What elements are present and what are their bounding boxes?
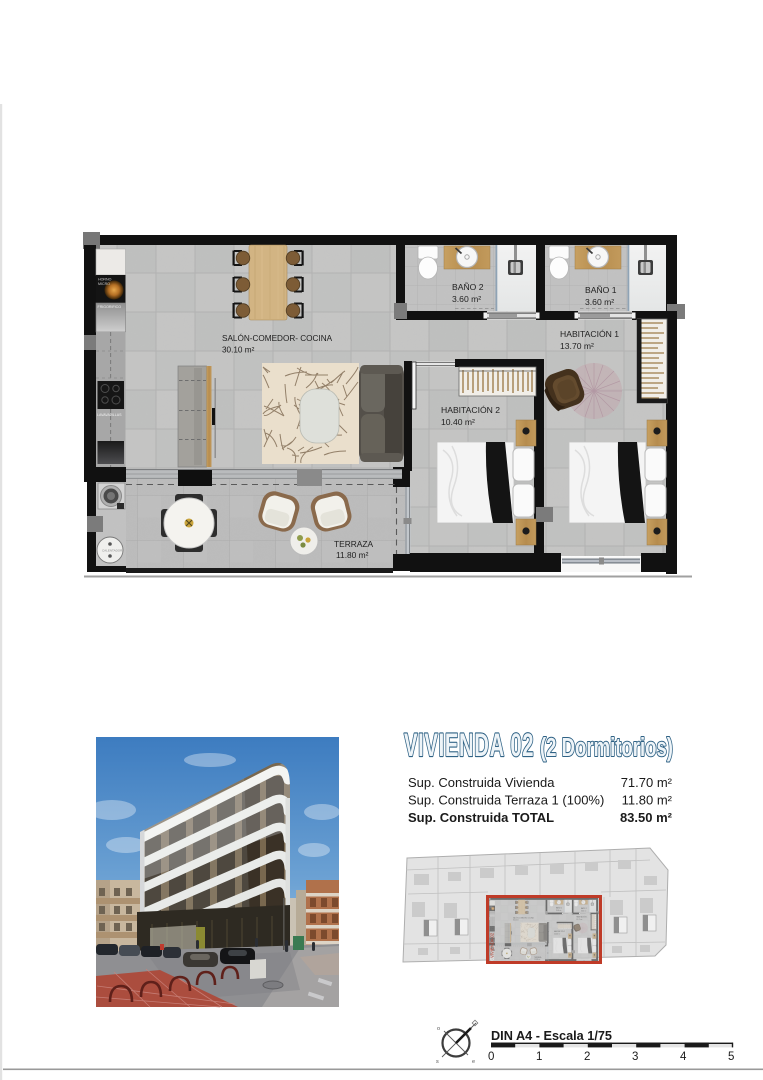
svg-text:o: o xyxy=(437,1026,440,1032)
svg-text:2: 2 xyxy=(584,1051,590,1063)
svg-text:3.60 m²: 3.60 m² xyxy=(452,294,481,304)
svg-text:83.50 m²: 83.50 m² xyxy=(620,810,673,825)
svg-text:e: e xyxy=(472,1059,475,1065)
svg-text:SALÓN-COMEDOR- COCINA: SALÓN-COMEDOR- COCINA xyxy=(222,333,333,343)
svg-text:3: 3 xyxy=(632,1051,638,1063)
svg-text:HABITACIÓN 2: HABITACIÓN 2 xyxy=(441,405,500,415)
svg-text:1: 1 xyxy=(536,1051,542,1063)
svg-text:HABITACIÓN 1: HABITACIÓN 1 xyxy=(560,329,619,339)
svg-text:s: s xyxy=(436,1059,439,1065)
svg-text:11.80 m²: 11.80 m² xyxy=(622,793,673,808)
svg-text:VIVIENDA 02: VIVIENDA 02 xyxy=(404,727,534,763)
svg-text:VIVIENDA 02: VIVIENDA 02 xyxy=(490,932,495,958)
svg-text:(2 Dormitorios): (2 Dormitorios) xyxy=(540,733,673,762)
svg-text:10.40 m²: 10.40 m² xyxy=(441,417,475,427)
svg-text:5: 5 xyxy=(728,1051,734,1063)
svg-text:HORNO: HORNO xyxy=(98,278,112,282)
svg-text:30.10 m²: 30.10 m² xyxy=(222,346,255,355)
svg-text:11.80 m²: 11.80 m² xyxy=(336,550,369,560)
svg-text:MICRO: MICRO xyxy=(98,282,110,286)
svg-text:0: 0 xyxy=(488,1051,494,1063)
svg-text:CALENTADOR: CALENTADOR xyxy=(102,549,123,553)
svg-text:BAÑO 1: BAÑO 1 xyxy=(585,285,617,295)
svg-text:DIN A4 - Escala 1/75: DIN A4 - Escala 1/75 xyxy=(491,1028,612,1043)
svg-text:Sup. Construida Vivienda: Sup. Construida Vivienda xyxy=(408,775,555,790)
svg-text:Sup. Construida TOTAL: Sup. Construida TOTAL xyxy=(408,810,554,825)
svg-text:4: 4 xyxy=(680,1051,687,1063)
svg-text:13.70 m²: 13.70 m² xyxy=(560,341,594,351)
svg-text:LAVAVAJILLAS: LAVAVAJILLAS xyxy=(97,413,122,417)
svg-text:71.70 m²: 71.70 m² xyxy=(621,775,673,790)
svg-text:Sup. Construida Terraza 1 (100: Sup. Construida Terraza 1 (100%) xyxy=(408,793,604,808)
svg-text:BAÑO 2: BAÑO 2 xyxy=(452,282,484,292)
svg-text:3.60 m²: 3.60 m² xyxy=(585,297,614,307)
svg-text:FRIGORIFICO: FRIGORIFICO xyxy=(98,305,122,309)
svg-text:TERRAZA: TERRAZA xyxy=(334,539,374,549)
